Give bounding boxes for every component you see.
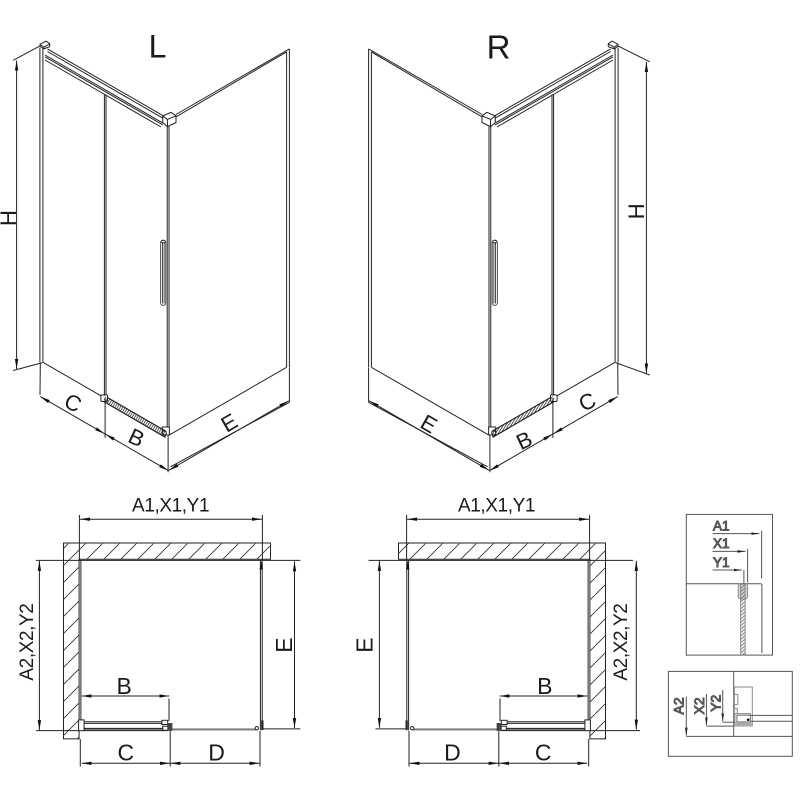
svg-text:A1,X1,Y1: A1,X1,Y1 (458, 496, 535, 517)
svg-text:A1: A1 (713, 518, 730, 533)
svg-text:E: E (351, 637, 377, 652)
svg-text:Y1: Y1 (713, 555, 730, 570)
svg-text:X2: X2 (691, 697, 707, 714)
svg-text:Y2: Y2 (707, 694, 723, 711)
svg-text:B: B (117, 673, 132, 699)
svg-text:B: B (537, 673, 552, 699)
svg-text:D: D (444, 740, 461, 766)
svg-text:A2,X2,Y2: A2,X2,Y2 (17, 604, 38, 681)
svg-text:H: H (624, 203, 649, 219)
svg-text:R: R (487, 29, 511, 66)
svg-text:D: D (208, 740, 225, 766)
svg-text:A1,X1,Y1: A1,X1,Y1 (132, 496, 209, 517)
svg-text:C: C (117, 740, 134, 766)
svg-text:E: E (271, 637, 297, 652)
svg-text:A2,X2,Y2: A2,X2,Y2 (611, 604, 632, 681)
svg-text:L: L (149, 29, 167, 65)
svg-text:X1: X1 (713, 536, 730, 551)
svg-text:C: C (535, 740, 552, 766)
svg-text:A2: A2 (670, 697, 686, 714)
svg-text:H: H (0, 210, 21, 226)
